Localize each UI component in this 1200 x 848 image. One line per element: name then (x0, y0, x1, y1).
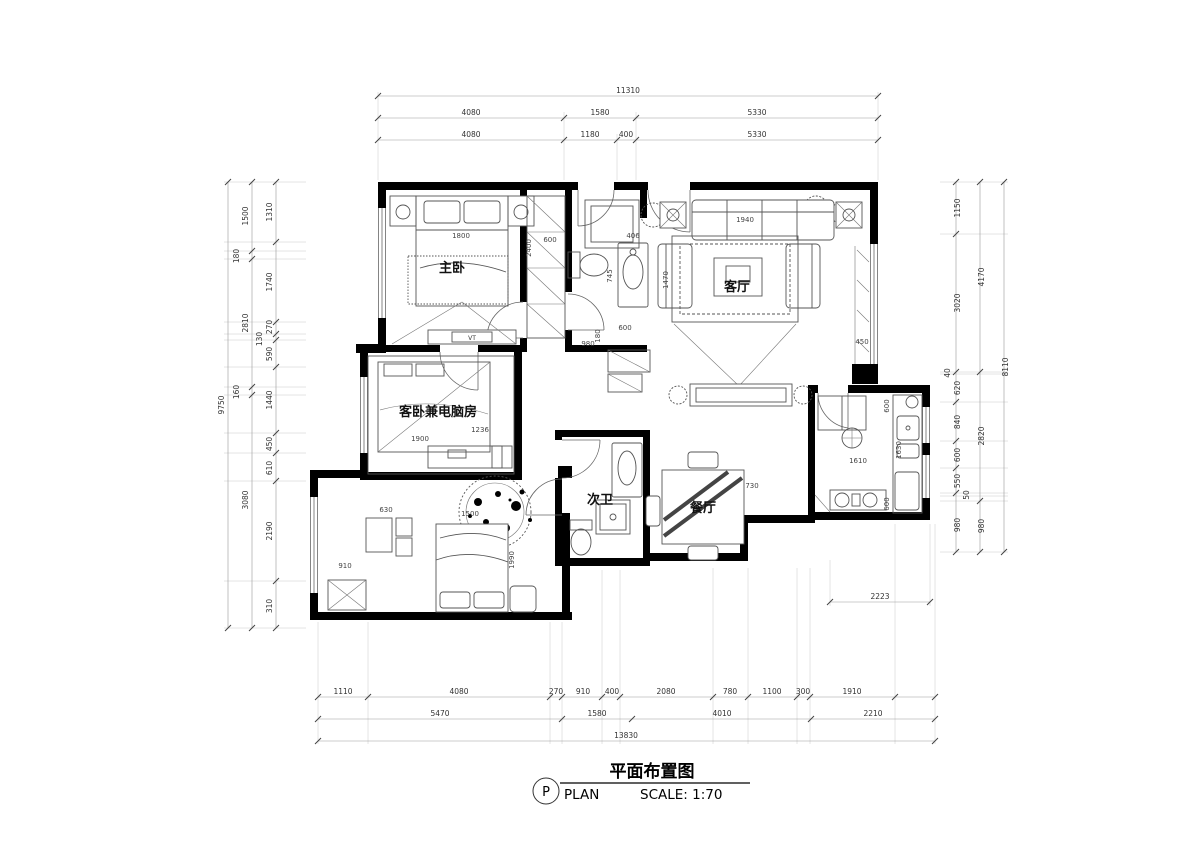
dim-bot-r1-6: 780 (723, 687, 738, 696)
living-room-furniture (641, 196, 862, 406)
dim-left-mid-0: 1500 (241, 206, 250, 225)
sofa (692, 200, 834, 240)
dim-top-r3-2: 400 (619, 130, 634, 139)
plan-symbol-letter: P (542, 785, 550, 800)
dim-bot-r1-7: 1100 (762, 687, 781, 696)
furniture (328, 196, 922, 612)
utility-door (578, 190, 614, 226)
dim-bot-r2-2: 4010 (712, 709, 731, 718)
sink (897, 416, 919, 440)
dim-right-in-8: 980 (953, 518, 962, 533)
guest-room-door (440, 352, 478, 390)
dim-bot-r2-1: 1580 (587, 709, 606, 718)
idim-basin-d: 745 (606, 269, 614, 282)
plan-label: PLAN (564, 787, 599, 803)
dim-bot-r1-3: 910 (576, 687, 591, 696)
dim-bot-r1-2: 270 (549, 687, 564, 696)
idim-kitchen-d: 1630 (895, 441, 903, 459)
room-label-master-bedroom: 主卧 (439, 260, 465, 276)
dim-right-in-1: 3020 (953, 293, 962, 312)
dim-right-in-3: 620 (953, 381, 962, 396)
idim-kitchen-w: 1610 (849, 457, 867, 465)
floor-plan-drawing: 11310 4080 1580 5330 4080 1180 400 5330 … (0, 0, 1200, 848)
armchair (786, 244, 820, 308)
bedroom2-furniture (328, 476, 536, 612)
dim-top-r2-1: 1580 (590, 108, 609, 117)
dim-left-in-7: 610 (265, 461, 274, 476)
idim-basin-w: 406 (626, 232, 640, 240)
master-bedroom-furniture (390, 196, 565, 344)
toilet (570, 520, 592, 530)
dim-top-total: 11310 (616, 86, 640, 95)
stove (830, 490, 886, 510)
kitchen-door (818, 393, 848, 428)
desk1 (428, 446, 502, 468)
tv-text: VT (468, 335, 476, 342)
dim-bot-r2-3: 2210 (863, 709, 882, 718)
room-label-guest-bedroom: 客卧兼电脑房 (399, 404, 477, 420)
dim-left-in-6: 450 (265, 437, 274, 452)
dim-bot-r1-9: 1910 (842, 687, 861, 696)
scale-label: SCALE: 1:70 (640, 787, 722, 803)
idim-dining: 730 (745, 482, 758, 490)
drawing-title: 平面布置图 (610, 761, 695, 782)
dim-left-in-4: 590 (265, 347, 274, 362)
dim-bot-r1-8: 300 (796, 687, 811, 696)
bedside-table (510, 586, 536, 612)
dim-left-in-3: 130 (255, 332, 264, 347)
dim-left-in-8: 2190 (265, 521, 274, 540)
basin (618, 243, 648, 307)
idim-niche: 180 (594, 329, 602, 342)
dim-right-in-6: 550 (953, 474, 962, 489)
dim-left-mid-2: 2810 (241, 313, 250, 332)
idim-k-top: 600 (883, 399, 891, 412)
title-block: P 平面布置图 PLAN SCALE: 1:70 (533, 761, 750, 804)
dim-left-mid-4: 3080 (241, 490, 250, 509)
dim-right-in-2: 40 (943, 368, 952, 378)
dim-top-r3-1: 1180 (580, 130, 599, 139)
dim-right-total: 8110 (1001, 357, 1010, 376)
idim-hall-l: 980 (581, 340, 594, 348)
kitchen-furniture (815, 395, 922, 513)
dim-right-in-4: 840 (953, 415, 962, 430)
idim-bed2-w: 1500 (461, 510, 479, 518)
idim-k-bot: 600 (883, 497, 891, 510)
desk2 (366, 518, 392, 552)
dim-left-in-1: 1740 (265, 272, 274, 291)
idim-desk2: 630 (379, 506, 392, 514)
idim-desk1: 1236 (471, 426, 489, 434)
dim-bot-r1-1: 4080 (449, 687, 468, 696)
room-label-second-bath: 次卫 (587, 492, 613, 508)
tv-console (690, 384, 792, 406)
dim-bot-r1-0: 1110 (333, 687, 352, 696)
idim-rug-d: 1470 (662, 271, 670, 289)
idim-bed-w: 1800 (452, 232, 470, 240)
dim-right-mid-2: 980 (977, 519, 986, 534)
dim-top-r3-3: 5330 (747, 130, 766, 139)
chair (688, 546, 718, 560)
dim-top-r2-0: 4080 (461, 108, 480, 117)
chair (688, 452, 718, 468)
idim-hall-w: 600 (543, 236, 556, 244)
dim-left-in-9: 310 (265, 599, 274, 614)
bath-door (568, 294, 604, 330)
dim-left-in-5: 1440 (265, 390, 274, 409)
dim-right-in-0: 1150 (953, 198, 962, 217)
dim-top-r3-0: 4080 (461, 130, 480, 139)
windows (311, 208, 930, 593)
dim-left-mid-1: 180 (232, 249, 241, 264)
idim-bay-d: 450 (855, 338, 868, 346)
idim-bed2-d: 1990 (508, 551, 516, 569)
idim-closet2: 910 (338, 562, 351, 570)
dim-left-in-2: 270 (265, 320, 274, 335)
dim-left-in-0: 1310 (265, 202, 274, 221)
dim-right-mid-1: 2820 (977, 426, 986, 445)
dim-top-r2-2: 5330 (747, 108, 766, 117)
dim-bot-r1-5: 2080 (656, 687, 675, 696)
dim-right-mid-0: 4170 (977, 267, 986, 286)
floor-plan-page: 11310 4080 1580 5330 4080 1180 400 5330 … (0, 0, 1200, 848)
room-label-dining-room: 餐厅 (689, 500, 716, 516)
dim-right-in-5: 600 (953, 448, 962, 463)
idim-bed-d: 2400 (525, 239, 533, 257)
dim-left-total: 9750 (217, 395, 226, 414)
dimension-chains: 11310 4080 1580 5330 4080 1180 400 5330 … (217, 86, 1010, 744)
room-label-living-room: 客厅 (724, 279, 750, 295)
dim-left-mid-3: 160 (232, 385, 241, 400)
idim-bed3: 1900 (411, 435, 429, 443)
dim-right-in-7: 50 (962, 490, 971, 500)
dim-bot-total: 13830 (614, 731, 638, 740)
dim-bot-r2-0: 5470 (430, 709, 449, 718)
idim-wash: 600 (618, 324, 631, 332)
chair (646, 496, 660, 526)
dim-corner-br: 2223 (870, 592, 889, 601)
idim-sofa-w: 1940 (736, 216, 754, 224)
washing-machine (585, 200, 639, 248)
dim-bot-r1-4: 400 (605, 687, 620, 696)
